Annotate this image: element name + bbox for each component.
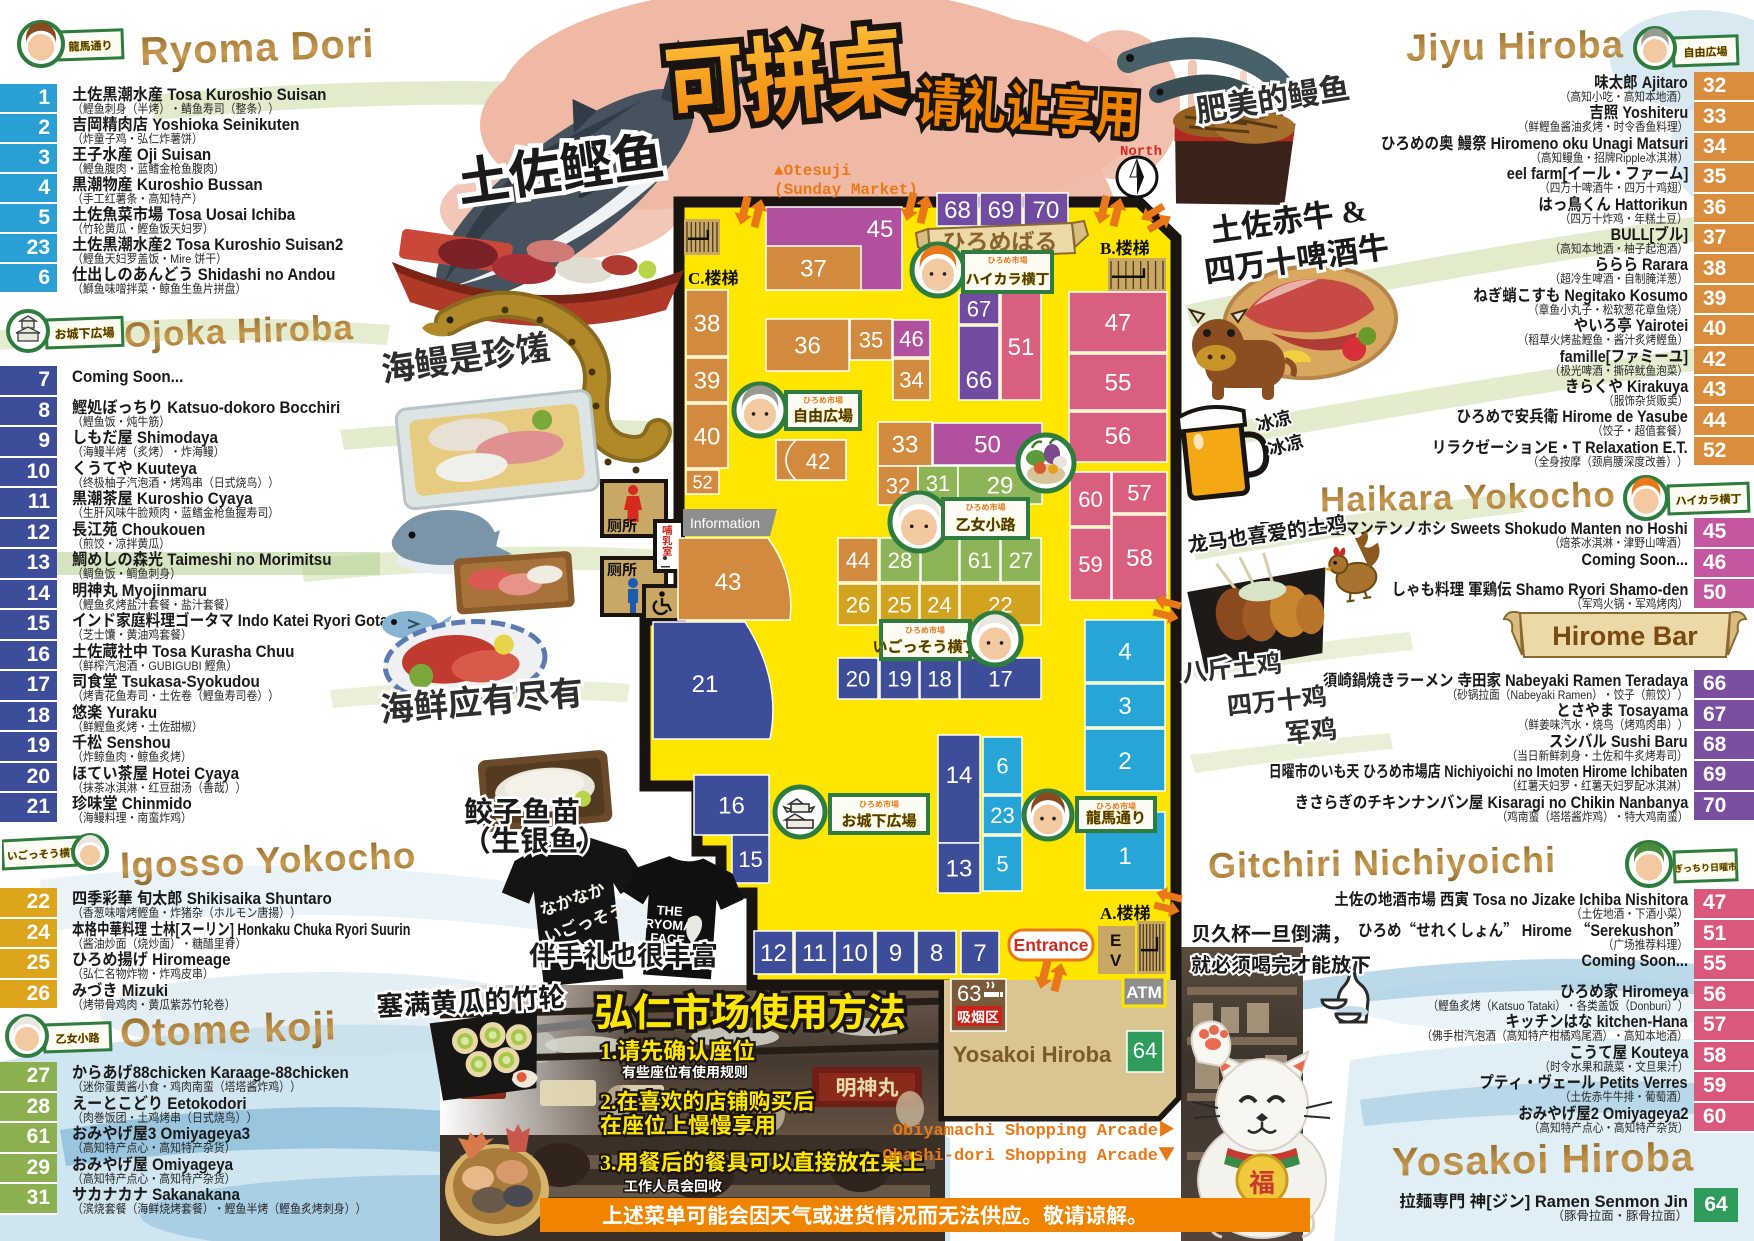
svg-text:塞满黄瓜的竹轮: 塞满黄瓜的竹轮: [375, 975, 566, 1024]
svg-text:就必须喝完才能放下: 就必须喝完才能放下: [1191, 949, 1371, 978]
svg-text:龙马也喜爱的土鸡: 龙马也喜爱的土鸡: [1186, 507, 1348, 558]
svg-text:在座位上慢慢享用: 在座位上慢慢享用: [600, 1108, 776, 1140]
svg-text:有些座位有使用规则: 有些座位有使用规则: [622, 1062, 748, 1082]
svg-text:（生银鱼）: （生银鱼）: [462, 818, 607, 860]
svg-text:可拼桌: 可拼桌: [659, 0, 913, 148]
svg-text:请礼让享用: 请礼让享用: [915, 60, 1143, 149]
svg-text:军鸡: 军鸡: [1283, 709, 1339, 751]
svg-text:贝久杯一旦倒满，: 贝久杯一旦倒满，: [1191, 918, 1351, 947]
svg-text:福: 福: [1249, 1163, 1275, 1200]
svg-text:弘仁市场使用方法: 弘仁市场使用方法: [594, 982, 906, 1038]
svg-text:伴手礼也很丰富: 伴手礼也很丰富: [529, 934, 718, 973]
svg-text:工作人员会回收: 工作人员会回收: [624, 1176, 722, 1196]
svg-text:1.请先确认座位: 1.请先确认座位: [600, 1032, 755, 1066]
svg-text:海鳗是珍馐: 海鳗是珍馐: [378, 320, 553, 392]
